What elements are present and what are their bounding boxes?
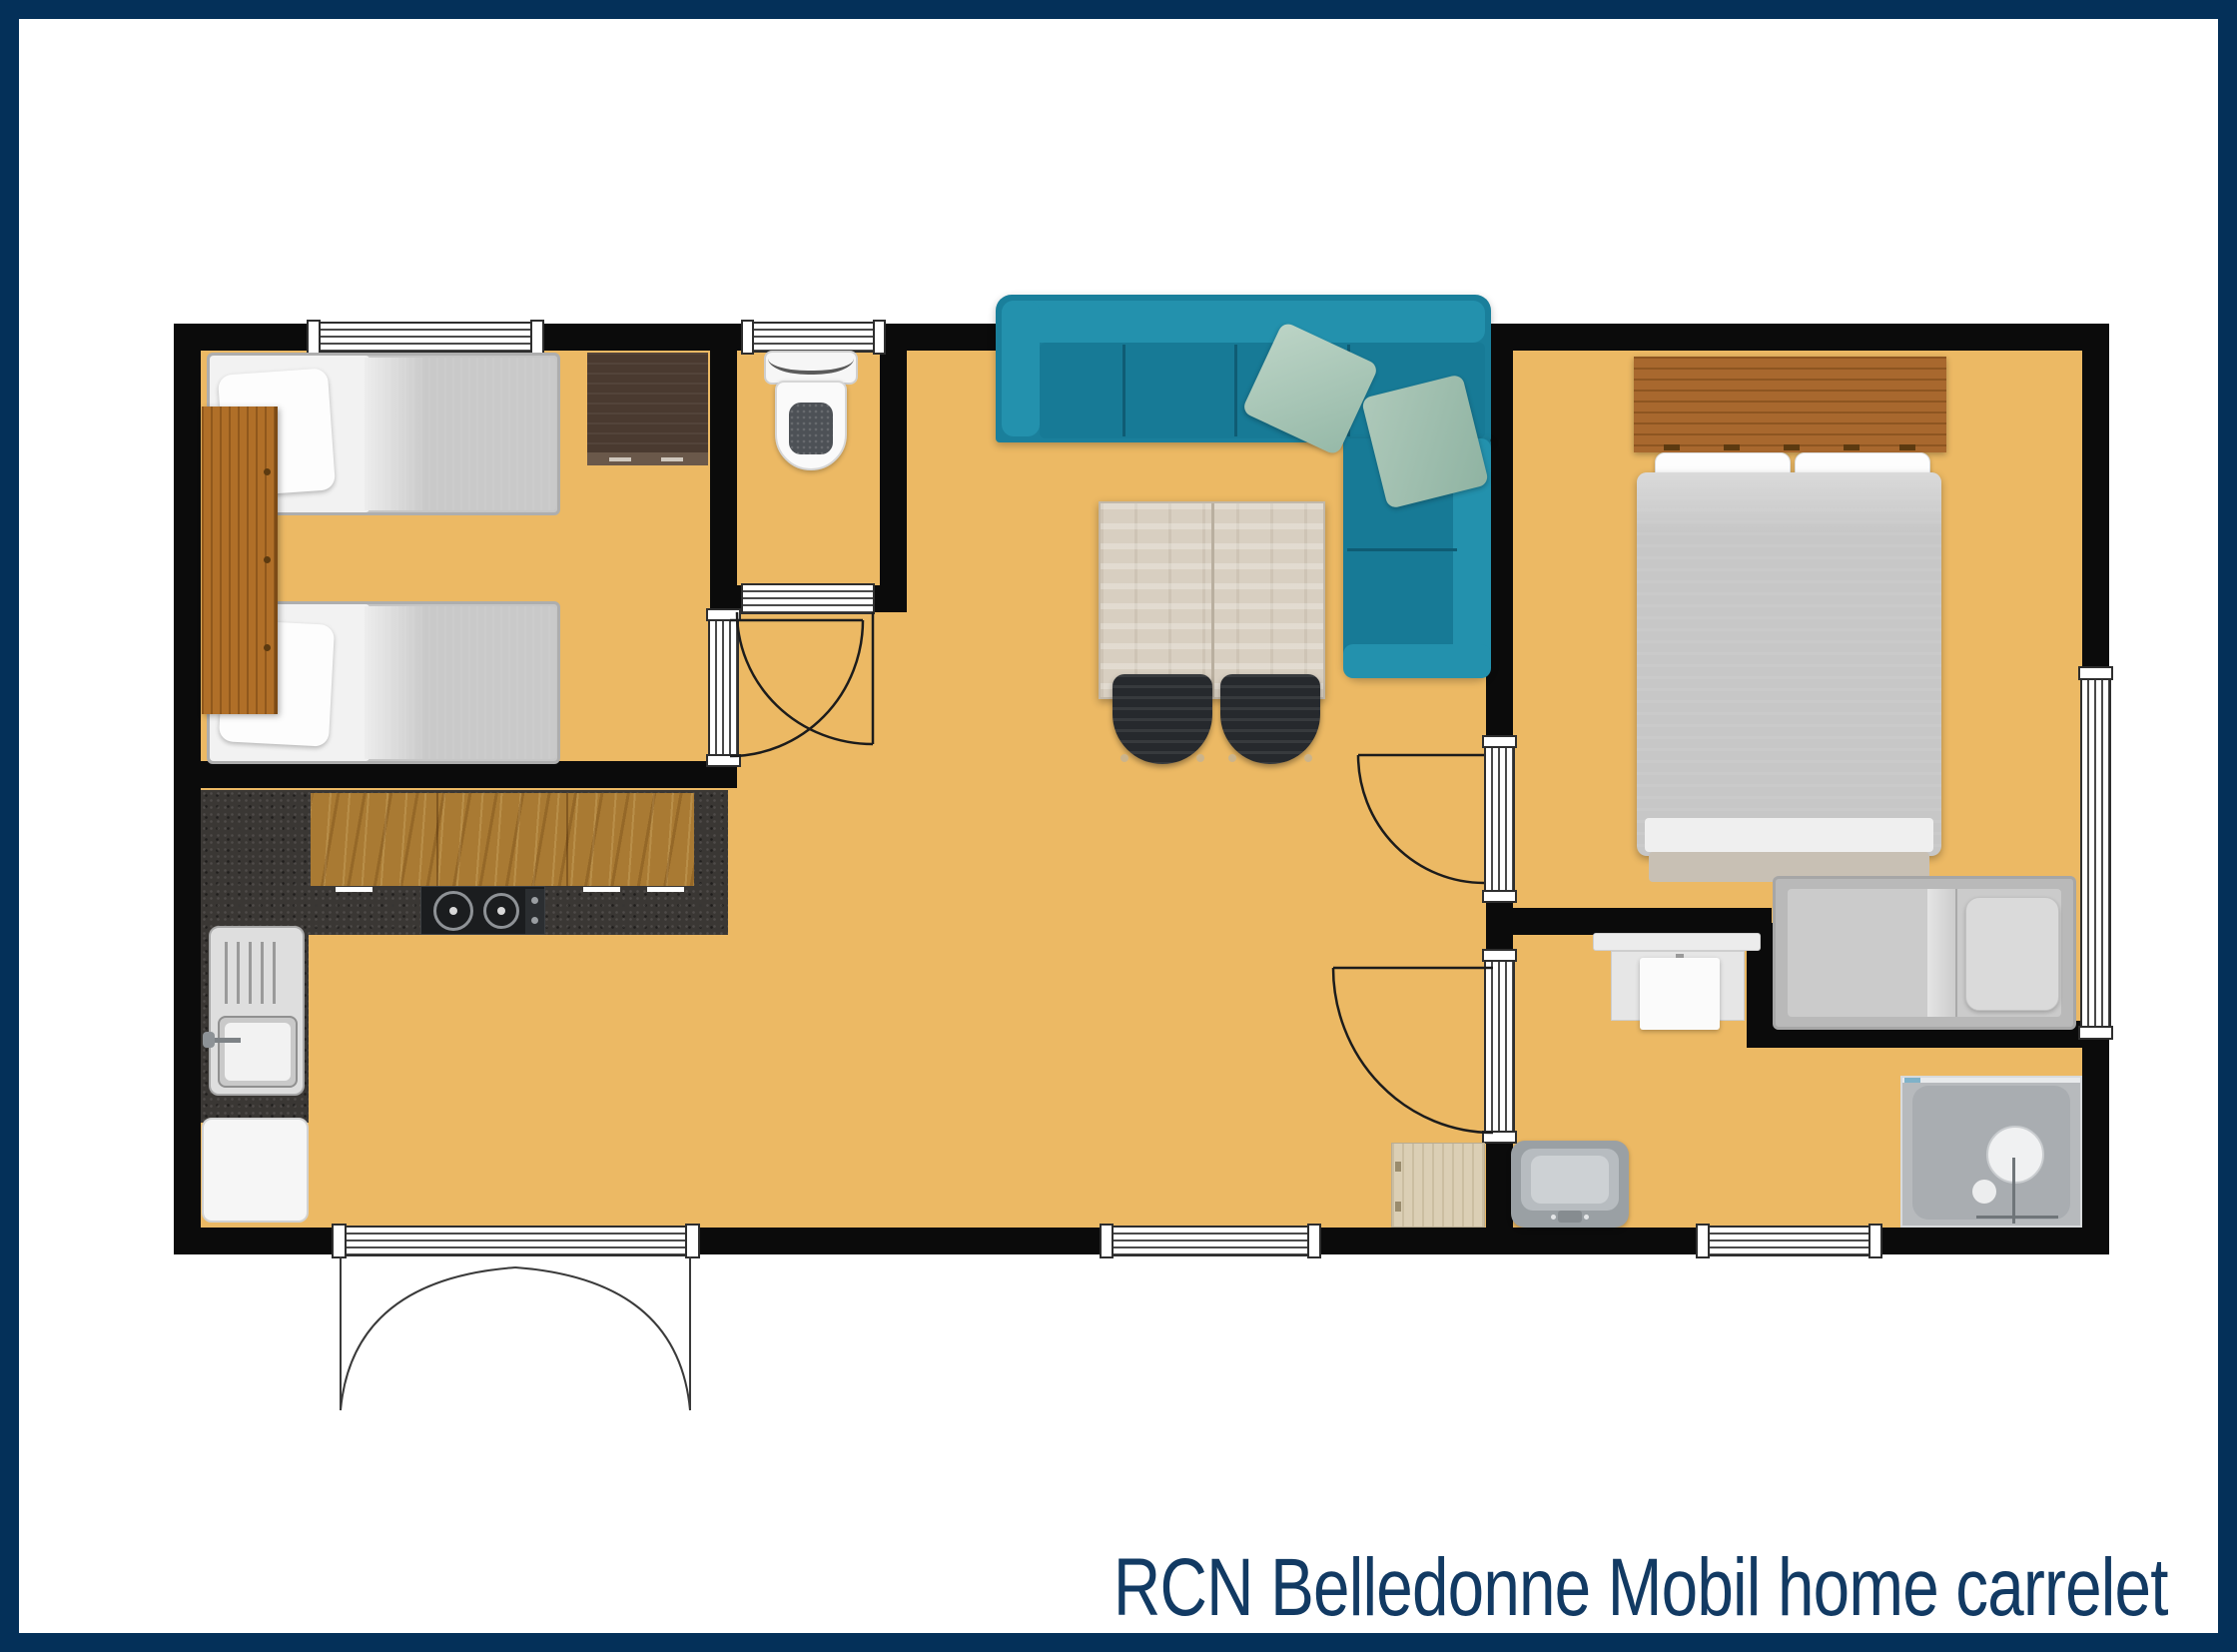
cabinet-knob xyxy=(1676,954,1684,958)
wc-door-opening xyxy=(741,583,875,614)
sofa-armrest-bottom xyxy=(1343,644,1491,678)
toilet-seat xyxy=(789,403,833,454)
drainer-line xyxy=(273,942,276,1004)
cabinet-hinge xyxy=(1395,1202,1401,1212)
shower-bar xyxy=(1976,1216,2058,1219)
sink-basin-inner xyxy=(225,1023,291,1081)
window-wc xyxy=(747,322,880,353)
drainer-line xyxy=(249,942,252,1004)
twin-bedroom-door-opening xyxy=(708,616,739,758)
kitchen-worktop-oak xyxy=(311,793,694,886)
window-cap xyxy=(2078,1026,2113,1040)
stove-knob xyxy=(531,897,538,904)
basin-faucet xyxy=(1558,1211,1582,1223)
wall-bedroom-wc-upper xyxy=(710,351,737,616)
wardrobe-handle xyxy=(661,457,683,461)
master-duvet-fold xyxy=(1637,472,1941,532)
hall-cabinet xyxy=(1593,933,1761,951)
stove-controls xyxy=(525,889,544,934)
headboard-slat xyxy=(1899,444,1915,450)
floor-plan-page: RCN Belledonne Mobil home carrelet xyxy=(0,0,2237,1652)
twin-bedroom-wardrobe xyxy=(587,353,708,465)
window-cap xyxy=(741,320,754,355)
handle-dot xyxy=(264,468,271,475)
twin-bedroom-side-table xyxy=(202,407,278,714)
bed-duvet-fold xyxy=(365,606,426,759)
wall-central-mid xyxy=(1486,895,1513,956)
bed-duvet-fold xyxy=(365,358,426,510)
door-cap xyxy=(706,754,741,767)
cabinet-handle xyxy=(647,887,684,892)
coffee-table xyxy=(1099,501,1325,699)
window-cap xyxy=(2078,666,2113,680)
cabinet-hinge xyxy=(1395,1162,1401,1172)
basin-bowl xyxy=(1531,1156,1609,1204)
worktop-seam xyxy=(566,793,568,886)
entrance-arc-right xyxy=(515,1267,690,1410)
single-sheet-fold xyxy=(1927,889,1957,1017)
door-cap xyxy=(1482,735,1517,748)
shower-glass-hinge xyxy=(1904,1078,1920,1083)
door-cap xyxy=(685,1224,700,1258)
single-bed xyxy=(1773,876,2076,1030)
window-cap xyxy=(530,320,544,355)
window-cap xyxy=(873,320,886,355)
burner-center xyxy=(449,907,457,915)
sofa-backrest xyxy=(1002,301,1485,343)
master-bed xyxy=(1637,452,1941,882)
door-cap xyxy=(1482,890,1517,903)
shower-drain xyxy=(1972,1180,1996,1204)
window-cap xyxy=(1100,1224,1114,1258)
handle-dot xyxy=(264,644,271,651)
wall-twin-bedroom-bottom xyxy=(174,761,737,788)
window-twin-bedroom xyxy=(315,322,536,353)
single-pillow xyxy=(1965,897,2059,1011)
wall-master-bottom xyxy=(1513,908,1772,935)
wardrobe-handle xyxy=(609,457,631,461)
faucet-dot xyxy=(1551,1215,1556,1220)
window-living-bottom xyxy=(1107,1226,1314,1256)
burner-center xyxy=(497,907,505,915)
worktop-seam xyxy=(436,793,438,886)
drainer-line xyxy=(237,942,240,1004)
cabinet-towel xyxy=(1640,958,1720,1030)
door-cap xyxy=(1482,1131,1517,1144)
window-cap xyxy=(1696,1224,1710,1258)
entrance-door-threshold xyxy=(339,1226,693,1256)
shower-riser xyxy=(2012,1158,2015,1224)
shower-glass xyxy=(1902,1078,2080,1083)
table-seam xyxy=(1211,503,1214,697)
headboard-slat xyxy=(1724,444,1740,450)
door-cap xyxy=(1482,949,1517,962)
wall-wc-right xyxy=(880,351,907,612)
pouf-foot xyxy=(1120,754,1128,762)
drainer-line xyxy=(225,942,228,1004)
pouf-foot xyxy=(1304,754,1312,762)
page-title: RCN Belledonne Mobil home carrelet xyxy=(1114,1541,2168,1635)
stove-knob xyxy=(531,917,538,924)
drainer-line xyxy=(261,942,264,1004)
headboard-slat xyxy=(1784,444,1800,450)
entrance-arc-left xyxy=(341,1267,515,1410)
headboard-slat xyxy=(1664,444,1680,450)
wardrobe-front xyxy=(587,452,708,465)
rear-door-opening xyxy=(1484,956,1515,1136)
sofa-armrest-left xyxy=(1002,301,1040,436)
window-master-right xyxy=(2080,674,2111,1032)
faucet-dot xyxy=(1584,1215,1589,1220)
master-sheet-strip xyxy=(1645,818,1933,852)
shower xyxy=(1900,1076,2082,1228)
kitchen-fridge xyxy=(202,1118,309,1223)
single-seam xyxy=(1955,889,1957,1017)
hall-cabinet-body xyxy=(1611,951,1745,1021)
window-cap xyxy=(1307,1224,1321,1258)
sink-faucet-base xyxy=(203,1032,215,1048)
wall-central-lower xyxy=(1486,1136,1513,1228)
cabinet-handle xyxy=(336,887,373,892)
cabinet-handle xyxy=(583,887,620,892)
handle-dot xyxy=(264,556,271,563)
master-door-opening xyxy=(1484,743,1515,895)
window-cap xyxy=(1868,1224,1882,1258)
shower-head xyxy=(1986,1126,2044,1184)
master-headboard xyxy=(1634,357,1946,452)
outer-wall-left xyxy=(174,324,201,1254)
living-small-cabinet xyxy=(1391,1143,1485,1228)
washbasin xyxy=(1511,1141,1629,1228)
window-cap xyxy=(307,320,321,355)
pouf-foot xyxy=(1228,754,1236,762)
kitchen-sink-unit xyxy=(209,926,305,1096)
window-bath-bottom xyxy=(1703,1226,1875,1256)
toilet xyxy=(764,351,858,470)
door-cap xyxy=(706,608,741,621)
headboard-slat xyxy=(1844,444,1860,450)
kitchen-stove xyxy=(420,886,545,935)
pouf-foot xyxy=(1196,754,1204,762)
door-cap xyxy=(332,1224,347,1258)
